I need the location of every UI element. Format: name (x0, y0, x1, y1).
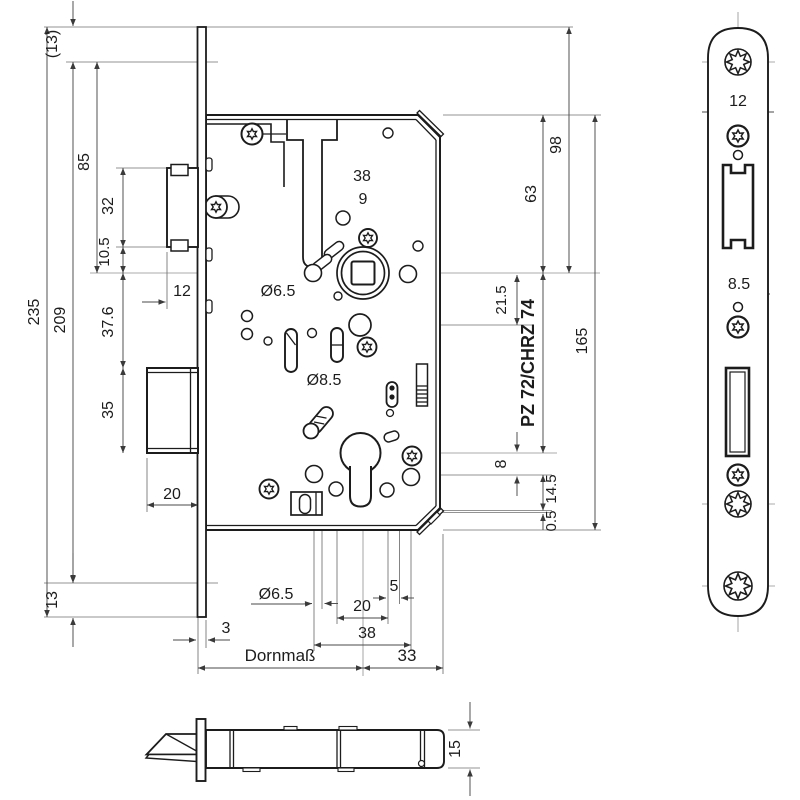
dim-5: 5 (390, 578, 399, 595)
torx-screw (359, 229, 377, 247)
torx-screw (728, 465, 749, 486)
fixing-hole (380, 483, 394, 497)
spindle-square-hole (352, 262, 375, 285)
small-hole (334, 292, 342, 300)
latch-insert-top (171, 165, 188, 176)
pin-slot (387, 382, 398, 407)
fixing-hole (306, 466, 323, 483)
star-screw (725, 491, 751, 517)
small-hole (734, 303, 743, 312)
dim-latch-height: 32 (100, 197, 117, 215)
small-hole (242, 311, 253, 322)
small-hole (413, 241, 423, 251)
small-hole (734, 151, 743, 160)
torx-screw (358, 338, 377, 357)
edge-tab (339, 727, 357, 731)
edge-tab (338, 768, 354, 772)
torx-screw (728, 126, 749, 147)
edge-tab (284, 727, 297, 731)
adjuster-block (291, 492, 322, 515)
deadbolt-opening (726, 368, 749, 456)
dim-dia-8-5: Ø8.5 (307, 372, 342, 389)
dim-dia-6-5-upper: Ø6.5 (261, 283, 296, 300)
edge-tab (243, 768, 260, 772)
faceplate-tab (206, 300, 212, 313)
star-screw (725, 49, 751, 75)
faceplate-tab (206, 158, 212, 171)
hole-8-5 (349, 314, 371, 336)
case-outline (206, 115, 440, 530)
lock-center-label: PZ 72/CHRZ 74 (518, 299, 538, 427)
dim-latch-slot-width: 12 (729, 93, 747, 110)
dim-latch-throw: 12 (173, 283, 191, 300)
backset-label: Dornmaß (245, 646, 316, 665)
small-hole (336, 211, 350, 225)
dim-3: 3 (222, 620, 231, 637)
small-hole (264, 337, 272, 345)
torx-screw (260, 480, 279, 499)
dim-33: 33 (398, 646, 417, 665)
dim-38: 38 (358, 625, 376, 642)
star-screw (724, 572, 752, 600)
torx-screw (205, 196, 227, 218)
case-side-profile (206, 730, 444, 768)
small-hole (242, 329, 253, 340)
rivet (419, 761, 425, 767)
latch-bolt (167, 168, 198, 247)
dim-21-5: 21.5 (493, 285, 510, 314)
dim-20: 20 (353, 598, 371, 615)
guide-slot (331, 328, 343, 362)
dim-hole-span-38: 38 (353, 168, 371, 185)
dim-case-top-to-spindle: 63 (523, 185, 540, 203)
faceplate-tab (206, 248, 212, 261)
handle-screw-hole-right (400, 266, 417, 283)
dim-8: 8 (493, 459, 510, 468)
dim-dia-6-5-lower: Ø6.5 (259, 586, 294, 603)
latch-opening (723, 165, 753, 248)
small-hole (308, 329, 317, 338)
dim-bottom-offset: 13 (44, 591, 61, 609)
torx-screw (728, 317, 749, 338)
faceplate-side (197, 719, 206, 781)
dim-bolt-height: 35 (100, 401, 117, 419)
faceplate-edge (198, 27, 207, 617)
small-hole (383, 128, 393, 138)
dim-top-offset-ref: (13) (44, 30, 61, 58)
follower (337, 247, 389, 299)
latch-insert-bottom (171, 240, 188, 251)
dim-inner-height: 209 (52, 307, 69, 334)
faceplate-front-view (708, 28, 768, 616)
dim-top-to-spindle: 85 (76, 153, 93, 171)
spring-stack (417, 364, 428, 406)
deadbolt (147, 368, 198, 453)
technical-drawing-page: 235 209 (13) 13 85 32 10.5 37.6 35 20 12… (0, 0, 800, 800)
torx-screw (242, 124, 263, 145)
torx-screw (403, 447, 422, 466)
dim-faceplate-top-to-spindle: 98 (548, 136, 565, 154)
dim-bolt-throw: 20 (163, 486, 181, 503)
dim-case-thickness: 15 (447, 740, 464, 758)
dim-spindle-to-bolt: 37.6 (100, 306, 117, 337)
dim-14-5: 14.5 (543, 474, 560, 503)
lock-drawing: 235 209 (13) 13 85 32 10.5 37.6 35 20 12… (0, 0, 800, 800)
dim-spindle-square: 9 (359, 191, 368, 208)
small-hole (387, 410, 394, 417)
fixing-hole (403, 469, 420, 486)
fixing-hole (329, 482, 343, 496)
handle-screw-hole-left (305, 265, 322, 282)
guide-slot (285, 329, 297, 372)
dim-overall-height: 235 (26, 299, 43, 326)
dim-bolt-slot-width: 8.5 (728, 276, 750, 293)
dim-0-5: 0.5 (543, 511, 560, 532)
dim-case-height: 165 (574, 328, 591, 355)
dim-latch-below: 10.5 (96, 237, 113, 266)
